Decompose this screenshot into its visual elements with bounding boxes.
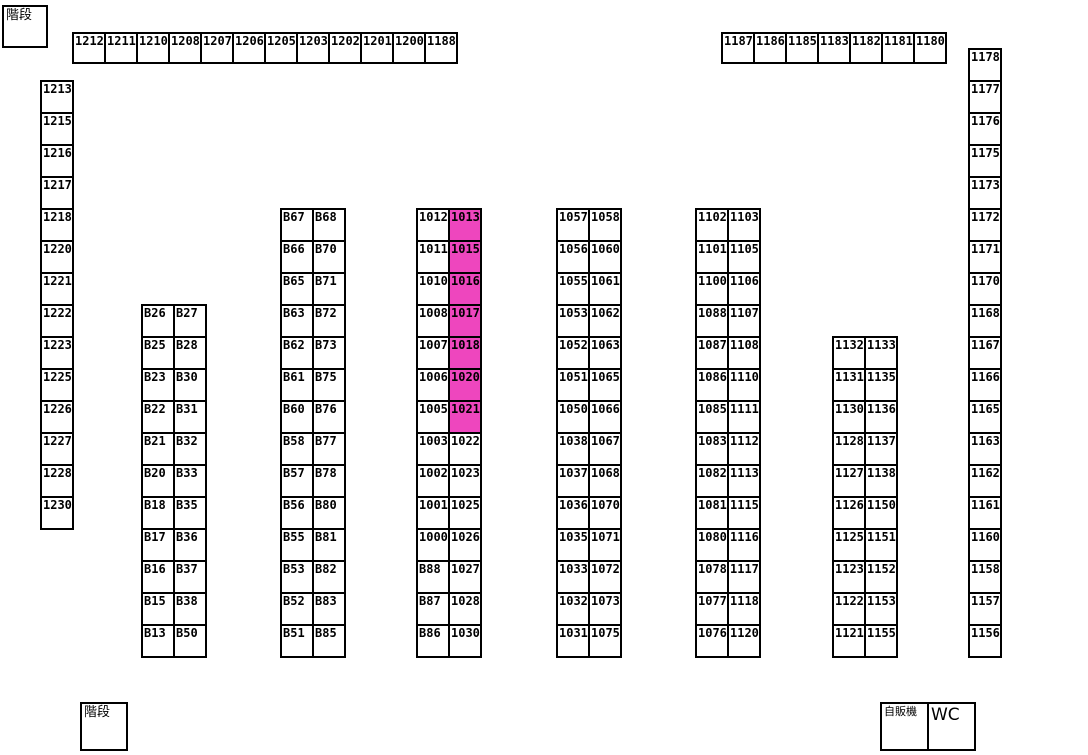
booth-cell-B33[interactable]: B33 bbox=[173, 464, 207, 498]
booth-number: B55 bbox=[282, 530, 312, 543]
booth-cell-1072[interactable]: 1072 bbox=[588, 560, 622, 594]
booth-number: B60 bbox=[282, 402, 312, 415]
booth-cell-B30[interactable]: B30 bbox=[173, 368, 207, 402]
booth-cell-1161[interactable]: 1161 bbox=[968, 496, 1002, 530]
booth-number: 1005 bbox=[418, 402, 448, 415]
booth-cell-B55[interactable]: B55 bbox=[280, 528, 314, 562]
booth-cell-1111[interactable]: 1111 bbox=[727, 400, 761, 434]
booth-cell-B51[interactable]: B51 bbox=[280, 624, 314, 658]
booth-cell-1123[interactable]: 1123 bbox=[832, 560, 866, 594]
booth-cell-1010[interactable]: 1010 bbox=[416, 272, 450, 306]
booth-cell-1027[interactable]: 1027 bbox=[448, 560, 482, 594]
booth-cell-1103[interactable]: 1103 bbox=[727, 208, 761, 242]
booth-cell-1117[interactable]: 1117 bbox=[727, 560, 761, 594]
booth-cell-B13[interactable]: B13 bbox=[141, 624, 175, 658]
booth-cell-1223[interactable]: 1223 bbox=[40, 336, 74, 370]
booth-cell-1062[interactable]: 1062 bbox=[588, 304, 622, 338]
booth-number: 1066 bbox=[590, 402, 620, 415]
booth-number: 1102 bbox=[697, 210, 727, 223]
booth-number: 1061 bbox=[590, 274, 620, 287]
booth-cell-1016[interactable]: 1016 bbox=[448, 272, 482, 306]
booth-cell-1007[interactable]: 1007 bbox=[416, 336, 450, 370]
booth-number: B27 bbox=[175, 306, 205, 319]
booth-number: 1101 bbox=[697, 242, 727, 255]
stairs-label: 階段 bbox=[82, 704, 126, 720]
booth-cell-1070[interactable]: 1070 bbox=[588, 496, 622, 530]
booth-cell-B22[interactable]: B22 bbox=[141, 400, 175, 434]
booth-cell-B65[interactable]: B65 bbox=[280, 272, 314, 306]
booth-cell-1157[interactable]: 1157 bbox=[968, 592, 1002, 626]
booth-number: 1152 bbox=[866, 562, 896, 575]
booth-number: 1128 bbox=[834, 434, 864, 447]
booth-cell-B75[interactable]: B75 bbox=[312, 368, 346, 402]
booth-cell-1037[interactable]: 1037 bbox=[556, 464, 590, 498]
booth-cell-1230[interactable]: 1230 bbox=[40, 496, 74, 530]
booth-cell-1185[interactable]: 1185 bbox=[785, 32, 819, 64]
booth-number: B37 bbox=[175, 562, 205, 575]
booth-cell-1181[interactable]: 1181 bbox=[881, 32, 915, 64]
booth-cell-1228[interactable]: 1228 bbox=[40, 464, 74, 498]
booth-cell-1083[interactable]: 1083 bbox=[695, 432, 729, 466]
booth-cell-1015[interactable]: 1015 bbox=[448, 240, 482, 274]
booth-cell-B68[interactable]: B68 bbox=[312, 208, 346, 242]
booth-number: 1052 bbox=[558, 338, 588, 351]
booth-cell-B73[interactable]: B73 bbox=[312, 336, 346, 370]
booth-cell-1150[interactable]: 1150 bbox=[864, 496, 898, 530]
booth-number: 1207 bbox=[202, 34, 232, 47]
booth-cell-1038[interactable]: 1038 bbox=[556, 432, 590, 466]
booth-number: B81 bbox=[314, 530, 344, 543]
booth-number: 1136 bbox=[866, 402, 896, 415]
booth-cell-1078[interactable]: 1078 bbox=[695, 560, 729, 594]
booth-cell-1006[interactable]: 1006 bbox=[416, 368, 450, 402]
booth-number: 1013 bbox=[450, 210, 480, 223]
booth-cell-1067[interactable]: 1067 bbox=[588, 432, 622, 466]
booth-number: 1085 bbox=[697, 402, 727, 415]
booth-number: 1212 bbox=[74, 34, 104, 47]
booth-cell-1061[interactable]: 1061 bbox=[588, 272, 622, 306]
booth-cell-1020[interactable]: 1020 bbox=[448, 368, 482, 402]
booth-cell-1125[interactable]: 1125 bbox=[832, 528, 866, 562]
booth-number: B21 bbox=[143, 434, 173, 447]
booth-cell-1187[interactable]: 1187 bbox=[721, 32, 755, 64]
booth-cell-B17[interactable]: B17 bbox=[141, 528, 175, 562]
booth-cell-1177[interactable]: 1177 bbox=[968, 80, 1002, 114]
booth-cell-1151[interactable]: 1151 bbox=[864, 528, 898, 562]
booth-cell-B38[interactable]: B38 bbox=[173, 592, 207, 626]
booth-number: 1067 bbox=[590, 434, 620, 447]
booth-number: 1001 bbox=[418, 498, 448, 511]
booth-cell-1152[interactable]: 1152 bbox=[864, 560, 898, 594]
booth-cell-1216[interactable]: 1216 bbox=[40, 144, 74, 178]
booth-cell-1113[interactable]: 1113 bbox=[727, 464, 761, 498]
vending-machine-label: 自販機 bbox=[882, 704, 927, 718]
booth-cell-1026[interactable]: 1026 bbox=[448, 528, 482, 562]
booth-cell-1130[interactable]: 1130 bbox=[832, 400, 866, 434]
booth-number: 1170 bbox=[970, 274, 1000, 287]
booth-cell-B18[interactable]: B18 bbox=[141, 496, 175, 530]
booth-cell-1081[interactable]: 1081 bbox=[695, 496, 729, 530]
booth-cell-1101[interactable]: 1101 bbox=[695, 240, 729, 274]
booth-cell-1107[interactable]: 1107 bbox=[727, 304, 761, 338]
booth-number: 1158 bbox=[970, 562, 1000, 575]
booth-number: 1083 bbox=[697, 434, 727, 447]
booth-cell-1205[interactable]: 1205 bbox=[264, 32, 298, 64]
booth-cell-1156[interactable]: 1156 bbox=[968, 624, 1002, 658]
booth-number: 1116 bbox=[729, 530, 759, 543]
booth-cell-1060[interactable]: 1060 bbox=[588, 240, 622, 274]
booth-number: 1081 bbox=[697, 498, 727, 511]
booth-cell-B88[interactable]: B88 bbox=[416, 560, 450, 594]
booth-cell-1227[interactable]: 1227 bbox=[40, 432, 74, 466]
booth-cell-1131[interactable]: 1131 bbox=[832, 368, 866, 402]
booth-number: B56 bbox=[282, 498, 312, 511]
booth-cell-1053[interactable]: 1053 bbox=[556, 304, 590, 338]
booth-cell-B28[interactable]: B28 bbox=[173, 336, 207, 370]
booth-number: 1160 bbox=[970, 530, 1000, 543]
booth-cell-1162[interactable]: 1162 bbox=[968, 464, 1002, 498]
booth-cell-1221[interactable]: 1221 bbox=[40, 272, 74, 306]
booth-cell-1222[interactable]: 1222 bbox=[40, 304, 74, 338]
booth-cell-1135[interactable]: 1135 bbox=[864, 368, 898, 402]
booth-cell-1165[interactable]: 1165 bbox=[968, 400, 1002, 434]
booth-cell-1077[interactable]: 1077 bbox=[695, 592, 729, 626]
booth-cell-B76[interactable]: B76 bbox=[312, 400, 346, 434]
booth-number: 1166 bbox=[970, 370, 1000, 383]
booth-cell-B58[interactable]: B58 bbox=[280, 432, 314, 466]
booth-cell-1115[interactable]: 1115 bbox=[727, 496, 761, 530]
booth-cell-B85[interactable]: B85 bbox=[312, 624, 346, 658]
booth-number: 1103 bbox=[729, 210, 759, 223]
booth-number: 1115 bbox=[729, 498, 759, 511]
venue-floor-map: 階段 階段 自販機 WC 121212111210120812071206120… bbox=[0, 0, 1088, 755]
booth-number: 1023 bbox=[450, 466, 480, 479]
booth-number: B50 bbox=[175, 626, 205, 639]
booth-number: 1226 bbox=[42, 402, 72, 415]
booth-cell-B78[interactable]: B78 bbox=[312, 464, 346, 498]
booth-cell-1175[interactable]: 1175 bbox=[968, 144, 1002, 178]
booth-number: 1127 bbox=[834, 466, 864, 479]
booth-number: B52 bbox=[282, 594, 312, 607]
booth-cell-B71[interactable]: B71 bbox=[312, 272, 346, 306]
booth-cell-1166[interactable]: 1166 bbox=[968, 368, 1002, 402]
booth-cell-1122[interactable]: 1122 bbox=[832, 592, 866, 626]
booth-cell-B36[interactable]: B36 bbox=[173, 528, 207, 562]
booth-number: 1022 bbox=[450, 434, 480, 447]
booth-number: B31 bbox=[175, 402, 205, 415]
booth-cell-1116[interactable]: 1116 bbox=[727, 528, 761, 562]
booth-number: 1082 bbox=[697, 466, 727, 479]
booth-cell-B23[interactable]: B23 bbox=[141, 368, 175, 402]
booth-cell-1012[interactable]: 1012 bbox=[416, 208, 450, 242]
booth-cell-1158[interactable]: 1158 bbox=[968, 560, 1002, 594]
booth-cell-1000[interactable]: 1000 bbox=[416, 528, 450, 562]
booth-cell-B50[interactable]: B50 bbox=[173, 624, 207, 658]
booth-number: 1086 bbox=[697, 370, 727, 383]
booth-cell-B63[interactable]: B63 bbox=[280, 304, 314, 338]
booth-number: B51 bbox=[282, 626, 312, 639]
booth-cell-1076[interactable]: 1076 bbox=[695, 624, 729, 658]
booth-number: 1011 bbox=[418, 242, 448, 255]
booth-number: 1210 bbox=[138, 34, 168, 47]
booth-cell-1021[interactable]: 1021 bbox=[448, 400, 482, 434]
booth-cell-1071[interactable]: 1071 bbox=[588, 528, 622, 562]
booth-cell-1121[interactable]: 1121 bbox=[832, 624, 866, 658]
booth-cell-1032[interactable]: 1032 bbox=[556, 592, 590, 626]
booth-cell-B60[interactable]: B60 bbox=[280, 400, 314, 434]
booth-cell-1210[interactable]: 1210 bbox=[136, 32, 170, 64]
booth-number: B61 bbox=[282, 370, 312, 383]
booth-number: B38 bbox=[175, 594, 205, 607]
booth-cell-B66[interactable]: B66 bbox=[280, 240, 314, 274]
booth-cell-1133[interactable]: 1133 bbox=[864, 336, 898, 370]
booth-cell-1001[interactable]: 1001 bbox=[416, 496, 450, 530]
booth-number: B23 bbox=[143, 370, 173, 383]
booth-cell-1202[interactable]: 1202 bbox=[328, 32, 362, 64]
booth-cell-B56[interactable]: B56 bbox=[280, 496, 314, 530]
booth-cell-1025[interactable]: 1025 bbox=[448, 496, 482, 530]
booth-cell-B16[interactable]: B16 bbox=[141, 560, 175, 594]
booth-cell-1106[interactable]: 1106 bbox=[727, 272, 761, 306]
booth-cell-1100[interactable]: 1100 bbox=[695, 272, 729, 306]
booth-cell-1155[interactable]: 1155 bbox=[864, 624, 898, 658]
booth-cell-1206[interactable]: 1206 bbox=[232, 32, 266, 64]
booth-cell-1050[interactable]: 1050 bbox=[556, 400, 590, 434]
booth-number: 1130 bbox=[834, 402, 864, 415]
booth-cell-B81[interactable]: B81 bbox=[312, 528, 346, 562]
booth-cell-1110[interactable]: 1110 bbox=[727, 368, 761, 402]
booth-number: 1151 bbox=[866, 530, 896, 543]
booth-cell-1225[interactable]: 1225 bbox=[40, 368, 74, 402]
booth-number: B75 bbox=[314, 370, 344, 383]
booth-cell-1136[interactable]: 1136 bbox=[864, 400, 898, 434]
booth-number: 1107 bbox=[729, 306, 759, 319]
booth-cell-B82[interactable]: B82 bbox=[312, 560, 346, 594]
booth-cell-1088[interactable]: 1088 bbox=[695, 304, 729, 338]
booth-number: 1223 bbox=[42, 338, 72, 351]
booth-cell-1018[interactable]: 1018 bbox=[448, 336, 482, 370]
booth-cell-B62[interactable]: B62 bbox=[280, 336, 314, 370]
booth-cell-1086[interactable]: 1086 bbox=[695, 368, 729, 402]
booth-cell-1056[interactable]: 1056 bbox=[556, 240, 590, 274]
booth-cell-1102[interactable]: 1102 bbox=[695, 208, 729, 242]
booth-cell-B35[interactable]: B35 bbox=[173, 496, 207, 530]
booth-number: B86 bbox=[418, 626, 448, 639]
booth-cell-1051[interactable]: 1051 bbox=[556, 368, 590, 402]
booth-cell-B72[interactable]: B72 bbox=[312, 304, 346, 338]
booth-cell-B57[interactable]: B57 bbox=[280, 464, 314, 498]
booth-number: 1165 bbox=[970, 402, 1000, 415]
vending-machine-box: 自販機 bbox=[880, 702, 929, 751]
booth-cell-1168[interactable]: 1168 bbox=[968, 304, 1002, 338]
booth-cell-1108[interactable]: 1108 bbox=[727, 336, 761, 370]
booth-number: 1203 bbox=[298, 34, 328, 47]
booth-cell-1087[interactable]: 1087 bbox=[695, 336, 729, 370]
booth-number: 1000 bbox=[418, 530, 448, 543]
booth-number: 1175 bbox=[970, 146, 1000, 159]
booth-cell-1082[interactable]: 1082 bbox=[695, 464, 729, 498]
booth-number: 1028 bbox=[450, 594, 480, 607]
booth-number: 1100 bbox=[697, 274, 727, 287]
booth-number: 1056 bbox=[558, 242, 588, 255]
booth-number: 1088 bbox=[697, 306, 727, 319]
booth-cell-B20[interactable]: B20 bbox=[141, 464, 175, 498]
booth-cell-B27[interactable]: B27 bbox=[173, 304, 207, 338]
booth-cell-B31[interactable]: B31 bbox=[173, 400, 207, 434]
booth-number: 1150 bbox=[866, 498, 896, 511]
booth-cell-1213[interactable]: 1213 bbox=[40, 80, 74, 114]
booth-number: 1120 bbox=[729, 626, 759, 639]
booth-cell-1182[interactable]: 1182 bbox=[849, 32, 883, 64]
booth-cell-B86[interactable]: B86 bbox=[416, 624, 450, 658]
booth-cell-1212[interactable]: 1212 bbox=[72, 32, 106, 64]
booth-cell-1167[interactable]: 1167 bbox=[968, 336, 1002, 370]
booth-cell-1220[interactable]: 1220 bbox=[40, 240, 74, 274]
booth-cell-1036[interactable]: 1036 bbox=[556, 496, 590, 530]
booth-cell-B32[interactable]: B32 bbox=[173, 432, 207, 466]
booth-cell-1068[interactable]: 1068 bbox=[588, 464, 622, 498]
booth-cell-1118[interactable]: 1118 bbox=[727, 592, 761, 626]
booth-cell-B70[interactable]: B70 bbox=[312, 240, 346, 274]
booth-number: 1068 bbox=[590, 466, 620, 479]
booth-number: 1180 bbox=[915, 34, 945, 47]
booth-cell-B87[interactable]: B87 bbox=[416, 592, 450, 626]
booth-cell-1063[interactable]: 1063 bbox=[588, 336, 622, 370]
booth-number: 1012 bbox=[418, 210, 448, 223]
booth-number: 1133 bbox=[866, 338, 896, 351]
booth-cell-B80[interactable]: B80 bbox=[312, 496, 346, 530]
booth-cell-1171[interactable]: 1171 bbox=[968, 240, 1002, 274]
booth-cell-1208[interactable]: 1208 bbox=[168, 32, 202, 64]
booth-cell-1003[interactable]: 1003 bbox=[416, 432, 450, 466]
booth-number: B72 bbox=[314, 306, 344, 319]
booth-cell-1226[interactable]: 1226 bbox=[40, 400, 74, 434]
booth-number: B58 bbox=[282, 434, 312, 447]
booth-cell-B83[interactable]: B83 bbox=[312, 592, 346, 626]
booth-cell-1022[interactable]: 1022 bbox=[448, 432, 482, 466]
booth-number: 1105 bbox=[729, 242, 759, 255]
booth-cell-1066[interactable]: 1066 bbox=[588, 400, 622, 434]
booth-cell-1005[interactable]: 1005 bbox=[416, 400, 450, 434]
booth-number: 1076 bbox=[697, 626, 727, 639]
booth-cell-1132[interactable]: 1132 bbox=[832, 336, 866, 370]
booth-cell-B53[interactable]: B53 bbox=[280, 560, 314, 594]
booth-cell-1017[interactable]: 1017 bbox=[448, 304, 482, 338]
booth-cell-B37[interactable]: B37 bbox=[173, 560, 207, 594]
booth-number: B65 bbox=[282, 274, 312, 287]
booth-cell-1163[interactable]: 1163 bbox=[968, 432, 1002, 466]
booth-cell-B21[interactable]: B21 bbox=[141, 432, 175, 466]
booth-cell-1002[interactable]: 1002 bbox=[416, 464, 450, 498]
booth-cell-1052[interactable]: 1052 bbox=[556, 336, 590, 370]
booth-cell-1035[interactable]: 1035 bbox=[556, 528, 590, 562]
booth-cell-1073[interactable]: 1073 bbox=[588, 592, 622, 626]
booth-cell-1183[interactable]: 1183 bbox=[817, 32, 851, 64]
booth-cell-1153[interactable]: 1153 bbox=[864, 592, 898, 626]
booth-number: 1173 bbox=[970, 178, 1000, 191]
booth-cell-1075[interactable]: 1075 bbox=[588, 624, 622, 658]
booth-number: 1110 bbox=[729, 370, 759, 383]
booth-cell-B77[interactable]: B77 bbox=[312, 432, 346, 466]
booth-number: B85 bbox=[314, 626, 344, 639]
booth-cell-1033[interactable]: 1033 bbox=[556, 560, 590, 594]
booth-cell-B25[interactable]: B25 bbox=[141, 336, 175, 370]
booth-cell-1112[interactable]: 1112 bbox=[727, 432, 761, 466]
booth-cell-1173[interactable]: 1173 bbox=[968, 176, 1002, 210]
booth-cell-1127[interactable]: 1127 bbox=[832, 464, 866, 498]
booth-number: B83 bbox=[314, 594, 344, 607]
booth-cell-1180[interactable]: 1180 bbox=[913, 32, 947, 64]
booth-number: B63 bbox=[282, 306, 312, 319]
booth-cell-1211[interactable]: 1211 bbox=[104, 32, 138, 64]
booth-cell-B67[interactable]: B67 bbox=[280, 208, 314, 242]
booth-cell-1065[interactable]: 1065 bbox=[588, 368, 622, 402]
booth-number: 1171 bbox=[970, 242, 1000, 255]
booth-cell-1200[interactable]: 1200 bbox=[392, 32, 426, 64]
booth-cell-1128[interactable]: 1128 bbox=[832, 432, 866, 466]
booth-number: 1161 bbox=[970, 498, 1000, 511]
booth-number: B32 bbox=[175, 434, 205, 447]
booth-number: 1123 bbox=[834, 562, 864, 575]
booth-number: 1221 bbox=[42, 274, 72, 287]
booth-cell-1008[interactable]: 1008 bbox=[416, 304, 450, 338]
booth-number: 1131 bbox=[834, 370, 864, 383]
booth-cell-1218[interactable]: 1218 bbox=[40, 208, 74, 242]
booth-cell-1172[interactable]: 1172 bbox=[968, 208, 1002, 242]
booth-number: 1181 bbox=[883, 34, 913, 47]
booth-number: 1182 bbox=[851, 34, 881, 47]
booth-number: 1060 bbox=[590, 242, 620, 255]
booth-cell-1176[interactable]: 1176 bbox=[968, 112, 1002, 146]
booth-number: 1162 bbox=[970, 466, 1000, 479]
booth-cell-1058[interactable]: 1058 bbox=[588, 208, 622, 242]
booth-cell-1013[interactable]: 1013 bbox=[448, 208, 482, 242]
booth-cell-1201[interactable]: 1201 bbox=[360, 32, 394, 64]
booth-cell-1126[interactable]: 1126 bbox=[832, 496, 866, 530]
booth-cell-1203[interactable]: 1203 bbox=[296, 32, 330, 64]
booth-number: 1062 bbox=[590, 306, 620, 319]
booth-cell-1080[interactable]: 1080 bbox=[695, 528, 729, 562]
booth-cell-B15[interactable]: B15 bbox=[141, 592, 175, 626]
booth-cell-1085[interactable]: 1085 bbox=[695, 400, 729, 434]
booth-cell-1217[interactable]: 1217 bbox=[40, 176, 74, 210]
booth-cell-B52[interactable]: B52 bbox=[280, 592, 314, 626]
booth-cell-1138[interactable]: 1138 bbox=[864, 464, 898, 498]
booth-cell-1055[interactable]: 1055 bbox=[556, 272, 590, 306]
booth-number: 1117 bbox=[729, 562, 759, 575]
booth-cell-1028[interactable]: 1028 bbox=[448, 592, 482, 626]
booth-number: 1055 bbox=[558, 274, 588, 287]
booth-cell-1170[interactable]: 1170 bbox=[968, 272, 1002, 306]
booth-cell-1023[interactable]: 1023 bbox=[448, 464, 482, 498]
booth-cell-1178[interactable]: 1178 bbox=[968, 48, 1002, 82]
booth-cell-1207[interactable]: 1207 bbox=[200, 32, 234, 64]
booth-cell-1186[interactable]: 1186 bbox=[753, 32, 787, 64]
booth-cell-1011[interactable]: 1011 bbox=[416, 240, 450, 274]
booth-cell-1105[interactable]: 1105 bbox=[727, 240, 761, 274]
booth-cell-1057[interactable]: 1057 bbox=[556, 208, 590, 242]
booth-cell-1188[interactable]: 1188 bbox=[424, 32, 458, 64]
booth-cell-1030[interactable]: 1030 bbox=[448, 624, 482, 658]
booth-cell-B26[interactable]: B26 bbox=[141, 304, 175, 338]
booth-cell-1137[interactable]: 1137 bbox=[864, 432, 898, 466]
booth-cell-B61[interactable]: B61 bbox=[280, 368, 314, 402]
booth-cell-1120[interactable]: 1120 bbox=[727, 624, 761, 658]
booth-number: B15 bbox=[143, 594, 173, 607]
booth-cell-1215[interactable]: 1215 bbox=[40, 112, 74, 146]
booth-cell-1160[interactable]: 1160 bbox=[968, 528, 1002, 562]
booth-cell-1031[interactable]: 1031 bbox=[556, 624, 590, 658]
